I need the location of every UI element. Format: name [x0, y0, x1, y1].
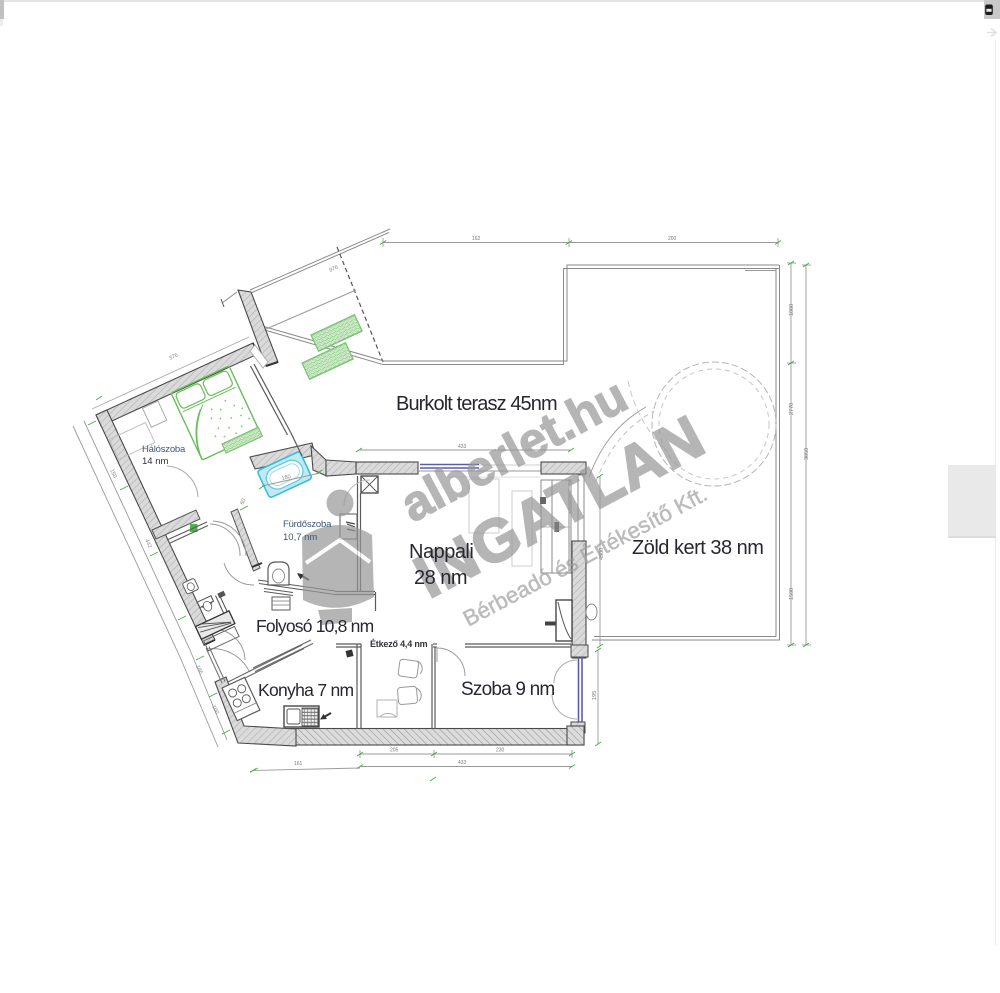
svg-text:Hálószoba: Hálószoba: [142, 444, 186, 455]
svg-text:Zöld kert 38 nm: Zöld kert 38 nm: [632, 537, 763, 559]
svg-text:3850: 3850: [804, 448, 810, 460]
svg-text:Burkolt terasz 45nm: Burkolt terasz 45nm: [396, 393, 557, 415]
svg-text:10,7 nm: 10,7 nm: [283, 532, 317, 543]
svg-text:Nappali: Nappali: [409, 541, 473, 563]
svg-text:1000: 1000: [789, 304, 795, 316]
svg-text:Fürdőszoba: Fürdőszoba: [283, 519, 332, 530]
svg-text:433: 433: [458, 760, 467, 766]
svg-text:Étkező 4,4 nm: Étkező 4,4 nm: [370, 639, 428, 649]
svg-text:230: 230: [496, 748, 505, 754]
svg-text:Szoba 9 nm: Szoba 9 nm: [461, 679, 554, 700]
svg-text:162: 162: [472, 236, 481, 242]
svg-text:205: 205: [390, 748, 399, 754]
svg-text:14 nm: 14 nm: [142, 456, 168, 467]
svg-text:28 nm: 28 nm: [414, 567, 467, 589]
svg-text:Folyosó 10,8 nm: Folyosó 10,8 nm: [256, 616, 374, 636]
svg-text:1500: 1500: [789, 588, 795, 600]
svg-text:Konyha 7 nm: Konyha 7 nm: [258, 680, 354, 700]
svg-text:195: 195: [592, 691, 598, 700]
svg-text:161: 161: [294, 761, 303, 767]
svg-text:200: 200: [668, 236, 677, 242]
svg-text:2770: 2770: [789, 403, 795, 415]
